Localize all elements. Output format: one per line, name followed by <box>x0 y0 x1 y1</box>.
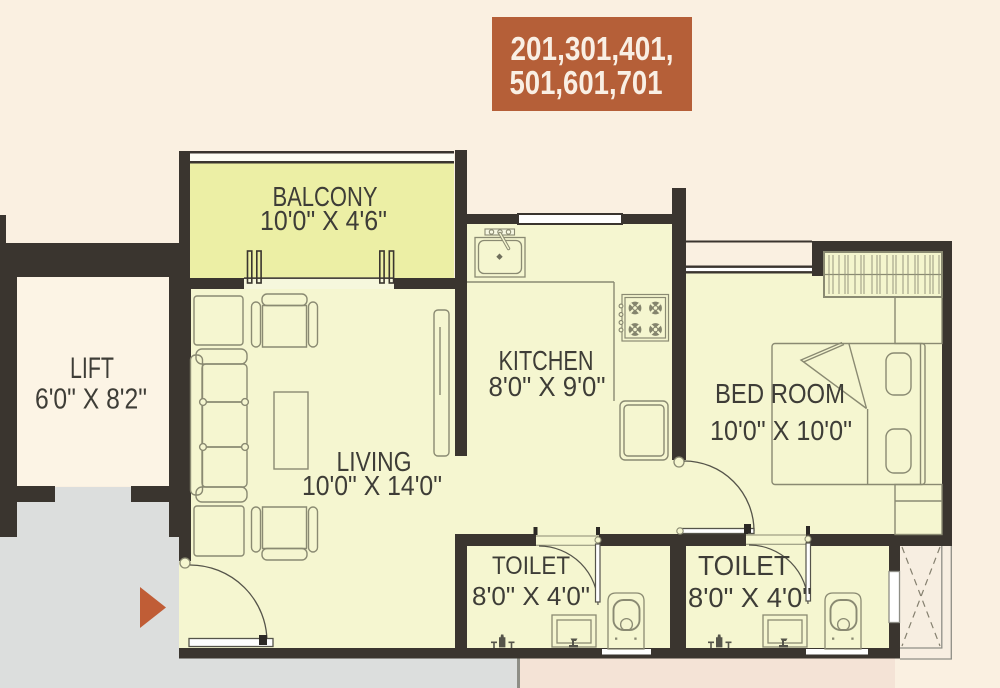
svg-text:8'0" X 9'0": 8'0" X 9'0" <box>489 371 606 402</box>
svg-text:TOILET: TOILET <box>698 550 790 581</box>
svg-text:LIFT: LIFT <box>70 352 114 385</box>
svg-text:10'0" X 14'0": 10'0" X 14'0" <box>302 470 442 501</box>
svg-text:8'0" X 4'0": 8'0" X 4'0" <box>472 581 590 611</box>
svg-text:201,301,401,: 201,301,401, <box>511 30 674 67</box>
svg-text:8'0" X 4'0": 8'0" X 4'0" <box>688 582 812 613</box>
svg-text:6'0" X 8'2": 6'0" X 8'2" <box>35 384 147 416</box>
svg-text:TOILET: TOILET <box>492 552 570 580</box>
svg-text:BED ROOM: BED ROOM <box>715 378 845 409</box>
svg-text:501,601,701: 501,601,701 <box>510 64 663 101</box>
svg-text:10'0" X 10'0": 10'0" X 10'0" <box>710 415 852 446</box>
svg-text:10'0" X 4'6": 10'0" X 4'6" <box>260 205 387 236</box>
